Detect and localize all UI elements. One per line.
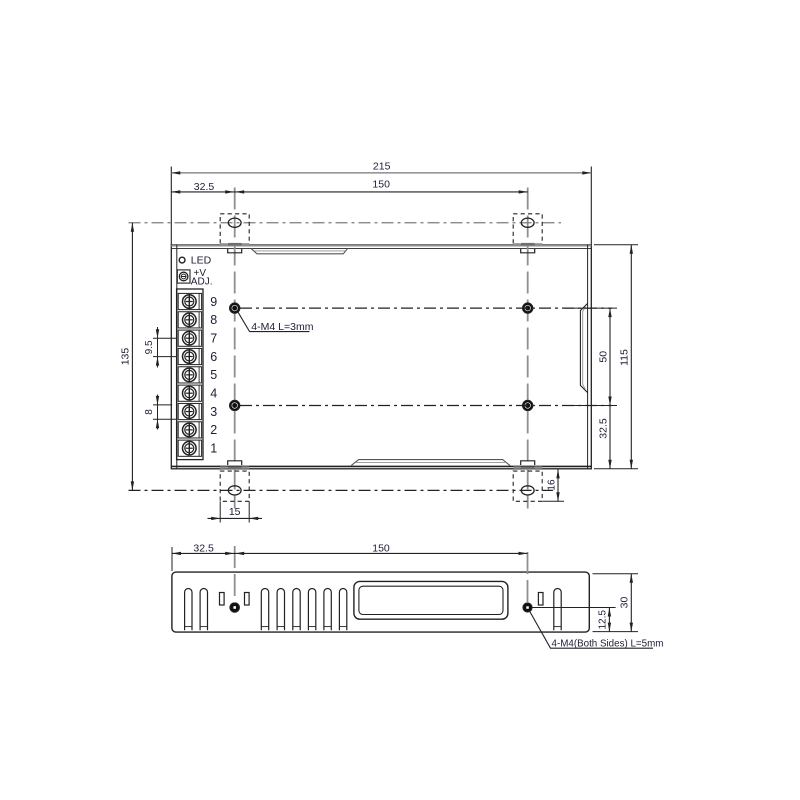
svg-text:4-M4 L=3mm: 4-M4 L=3mm xyxy=(251,321,313,333)
svg-text:215: 215 xyxy=(373,161,391,173)
svg-text:4-M4(Both Sides) L=5mm: 4-M4(Both Sides) L=5mm xyxy=(552,638,664,649)
svg-text:135: 135 xyxy=(120,348,132,366)
svg-text:3: 3 xyxy=(210,405,217,419)
svg-text:12.5: 12.5 xyxy=(598,610,609,630)
svg-text:5: 5 xyxy=(210,368,217,382)
svg-text:115: 115 xyxy=(619,349,631,366)
svg-text:LED: LED xyxy=(191,254,212,266)
svg-text:16: 16 xyxy=(546,479,557,491)
svg-text:32.5: 32.5 xyxy=(597,418,609,439)
svg-text:7: 7 xyxy=(210,331,217,345)
svg-text:30: 30 xyxy=(619,597,631,609)
svg-text:2: 2 xyxy=(210,423,217,437)
svg-text:8: 8 xyxy=(144,409,155,415)
svg-text:1: 1 xyxy=(210,442,217,456)
svg-text:15: 15 xyxy=(229,506,241,518)
svg-text:50: 50 xyxy=(597,351,609,363)
svg-text:32.5: 32.5 xyxy=(194,181,215,193)
svg-text:150: 150 xyxy=(372,542,390,554)
svg-text:150: 150 xyxy=(372,178,390,190)
svg-text:6: 6 xyxy=(210,350,217,364)
svg-text:9.5: 9.5 xyxy=(144,340,155,354)
svg-text:32.5: 32.5 xyxy=(193,542,214,554)
svg-text:ADJ.: ADJ. xyxy=(191,276,213,287)
svg-text:8: 8 xyxy=(210,313,217,327)
svg-text:4: 4 xyxy=(210,387,217,401)
svg-text:9: 9 xyxy=(210,295,217,309)
